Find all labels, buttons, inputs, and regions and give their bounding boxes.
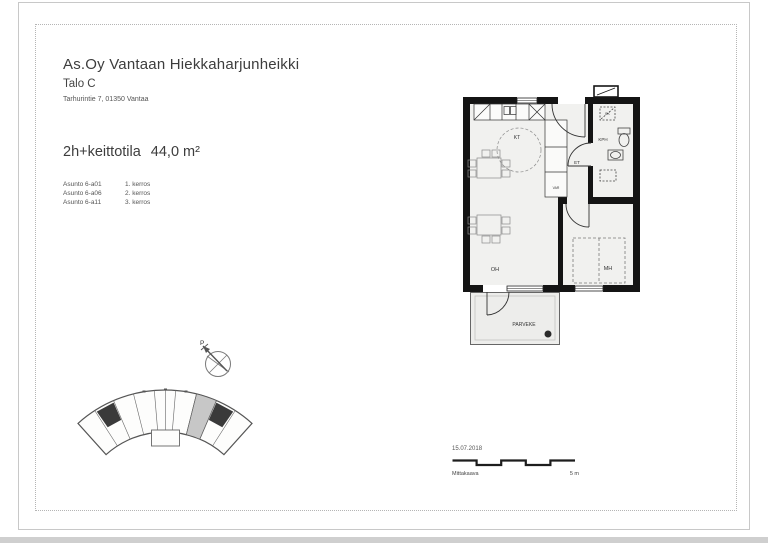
sink (504, 107, 510, 115)
unit-floor: 2. kerros (125, 189, 175, 198)
unit-row: Asunto 6-a01 1. kerros (63, 180, 175, 189)
room-label-kitchen: KT (514, 135, 520, 141)
room-label-bathroom: KPH (598, 137, 607, 142)
room-label-living: OH (491, 267, 499, 273)
scale-value: 5 m (570, 471, 579, 477)
central-stair (152, 430, 180, 446)
unit-list: Asunto 6-a01 1. kerros Asunto 6-a06 2. k… (63, 180, 175, 207)
apartment-area: 44,0 m² (151, 144, 200, 160)
unit-floor: 1. kerros (125, 180, 175, 189)
title-footer: 15.07.2018 Mittakaava 5 m (445, 444, 585, 484)
room-label-bedroom: MH (604, 266, 613, 272)
scale-bar (452, 458, 576, 468)
unit-name: Asunto 6-a01 (63, 180, 125, 189)
compass-icon: P (193, 333, 241, 381)
room-label-balcony: PARVEKE (512, 322, 536, 328)
drawing-date: 15.07.2018 (452, 446, 482, 452)
apartment-type-area: 2h+keittotila44,0 m² (63, 144, 200, 160)
unit-name: Asunto 6-a11 (63, 198, 125, 207)
unit-row: Asunto 6-a06 2. kerros (63, 189, 175, 198)
company-title: As.Oy Vantaan Hiekkaharjunheikki (63, 56, 299, 73)
label-washing-machine: PK (605, 112, 610, 116)
floor-drain (545, 331, 552, 338)
building-title: Talo C (63, 78, 96, 90)
floor-plan: KT ET KPH VAR PK OH MH PARVEKE (455, 80, 655, 350)
site-plan (70, 380, 260, 475)
room-label-hall: ET (574, 160, 580, 165)
balcony (471, 293, 560, 345)
room-label-closet: VAR (553, 186, 560, 190)
vent-shaft (594, 86, 618, 97)
unit-floor: 3. kerros (125, 198, 175, 207)
floorplan-sheet: As.Oy Vantaan Hiekkaharjunheikki Talo C … (0, 0, 768, 543)
unit-name: Asunto 6-a06 (63, 189, 125, 198)
scale-label: Mittakaava (452, 471, 479, 477)
kitchen-counter (474, 104, 545, 120)
unit-row: Asunto 6-a11 3. kerros (63, 198, 175, 207)
north-label: P (200, 340, 204, 347)
apartment-type: 2h+keittotila (63, 144, 141, 160)
address-line: Tarhurintie 7, 01350 Vantaa (63, 96, 149, 103)
page-bottom-edge (0, 537, 768, 543)
